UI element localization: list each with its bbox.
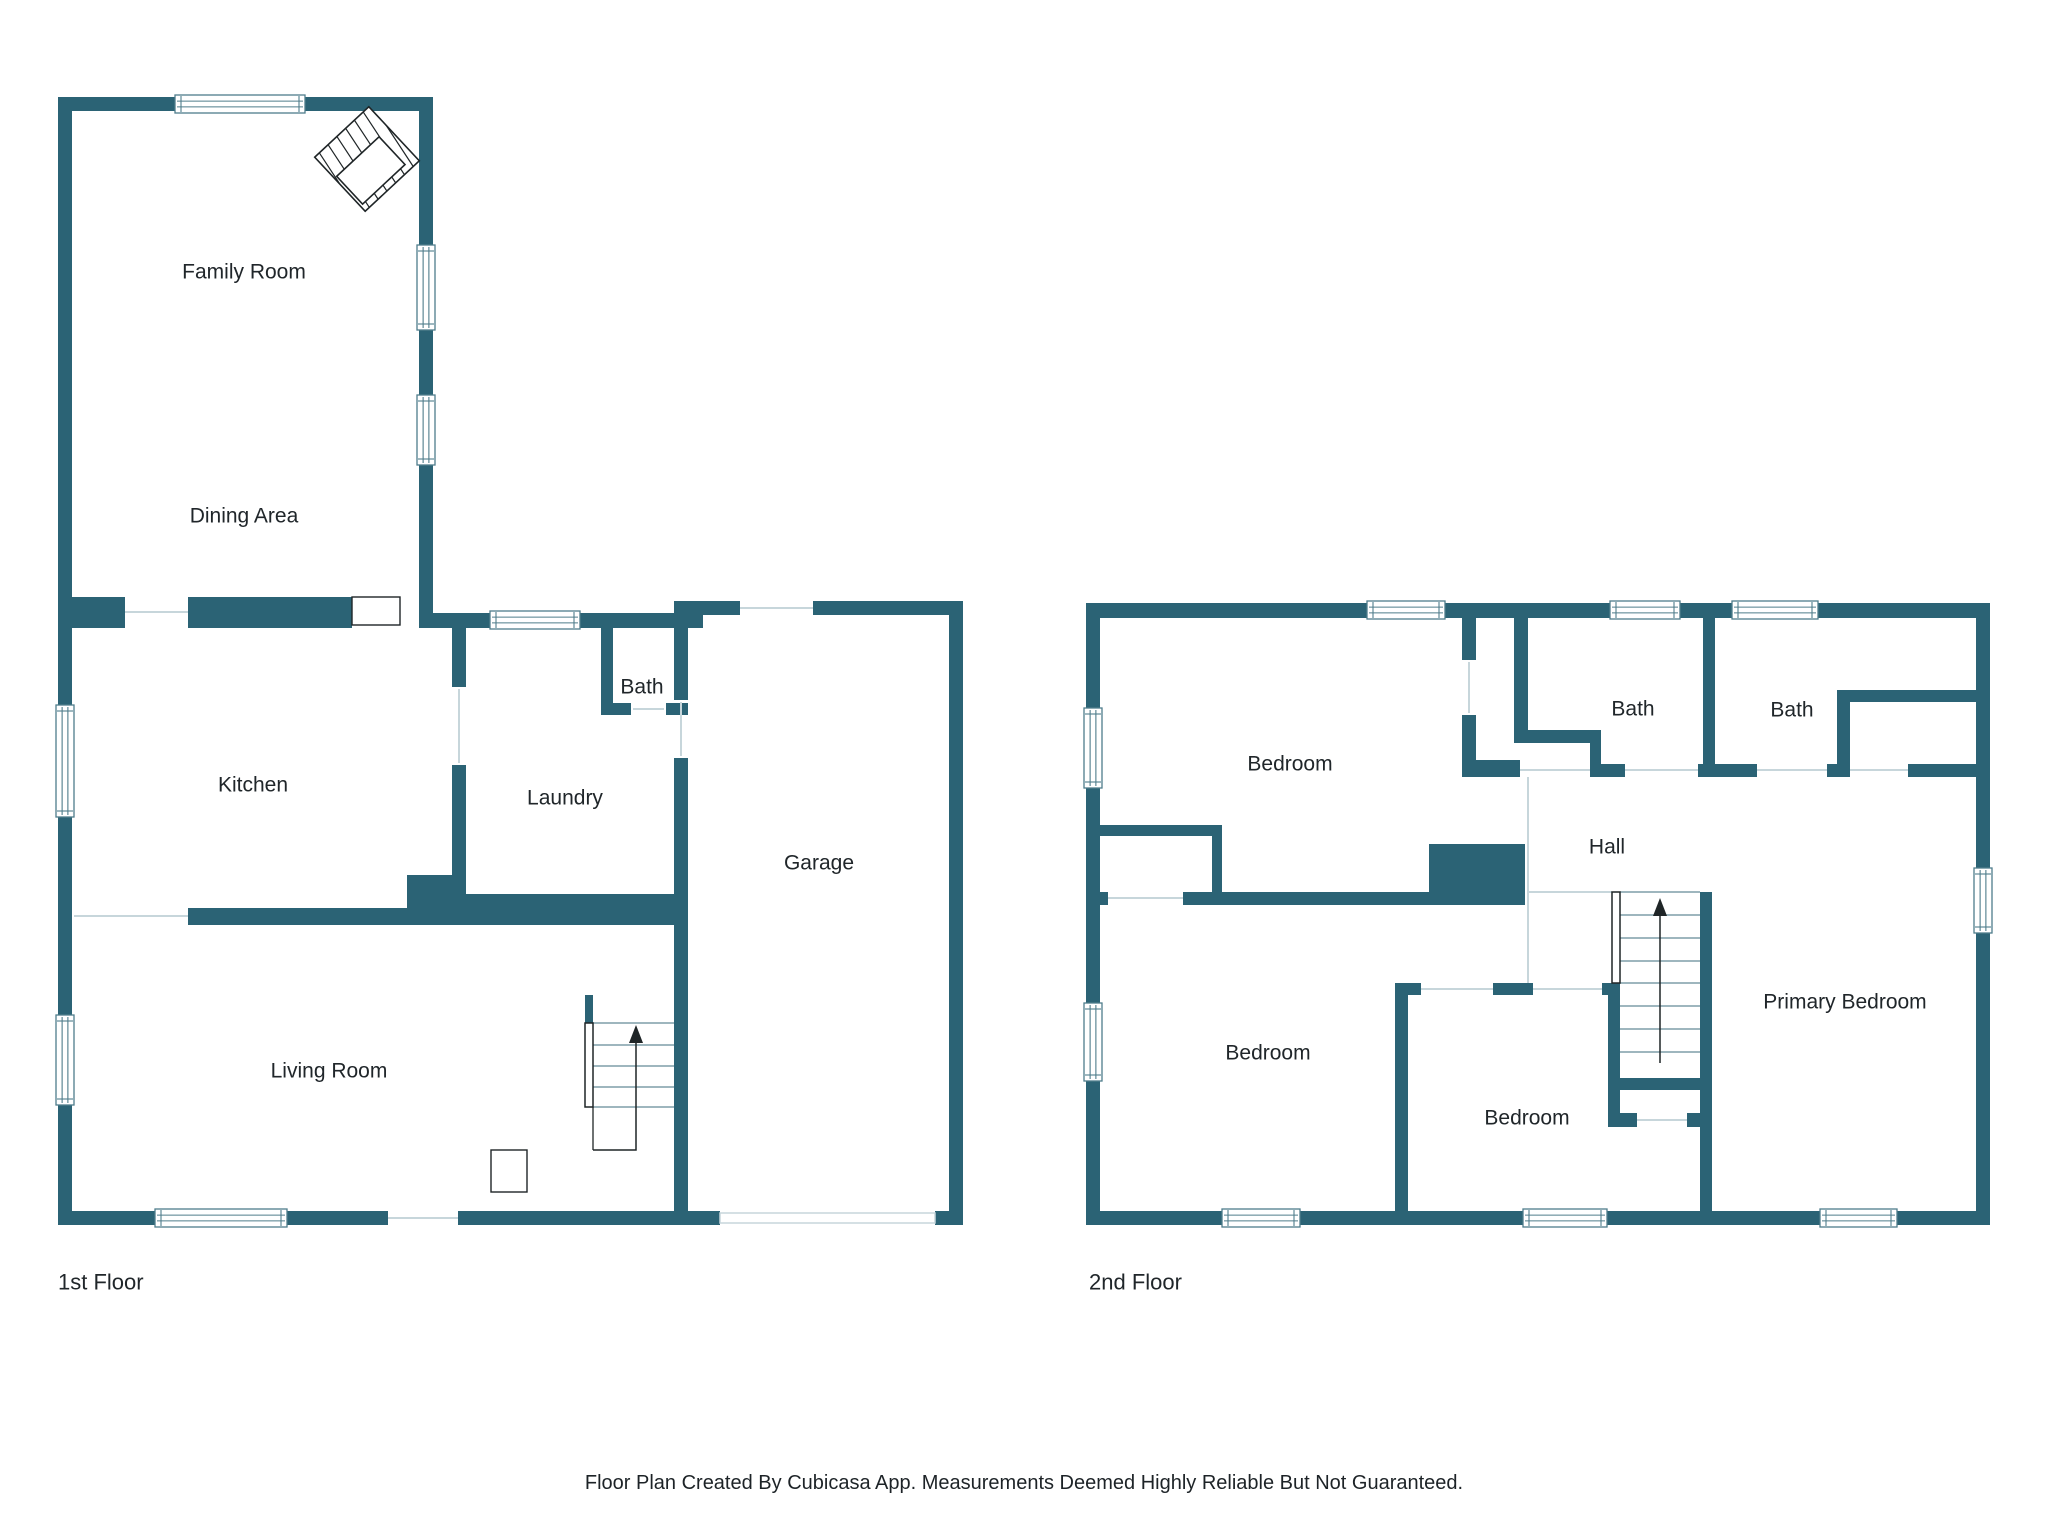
- window-icon: [1610, 601, 1680, 619]
- wall-segment: [1850, 690, 1977, 702]
- wall-segment: [674, 1211, 720, 1225]
- wall-segment: [188, 597, 352, 628]
- floor-first: Family RoomDining AreaKitchenBathLaundry…: [56, 92, 963, 1294]
- wall-segment: [1183, 892, 1429, 905]
- wall-segment: [1212, 836, 1222, 892]
- wall-segment: [1098, 892, 1108, 905]
- window-icon: [155, 1209, 287, 1227]
- wall-segment: [601, 628, 613, 715]
- room-label-living-room-6: Living Room: [271, 1060, 388, 1083]
- room-label-laundry-4: Laundry: [527, 787, 603, 810]
- floor-plan-page: Family RoomDining AreaKitchenBathLaundry…: [0, 0, 2048, 1536]
- window-icon: [175, 95, 305, 113]
- floor-second: BedroomBathBathHallBedroomBedroomPrimary…: [1084, 601, 1992, 1295]
- wall-segment: [1908, 764, 1990, 777]
- wall-segment: [666, 703, 688, 715]
- room-label-hall-3: Hall: [1589, 836, 1625, 859]
- wall-segment: [1608, 985, 1620, 1127]
- wall-segment: [1514, 730, 1601, 743]
- wall-segment: [407, 875, 466, 925]
- wall-segment: [1827, 764, 1850, 777]
- wall-segment: [1462, 715, 1476, 760]
- wall-segment: [188, 908, 407, 925]
- wall-segment: [452, 894, 688, 925]
- footer-disclaimer: Floor Plan Created By Cubicasa App. Meas…: [0, 1472, 2048, 1495]
- wall-segment: [1462, 618, 1476, 660]
- wall-segment: [452, 628, 466, 687]
- wall-segment: [452, 765, 466, 894]
- window-icon: [1084, 708, 1102, 788]
- stair-up-arrow-icon: [629, 1025, 643, 1043]
- window-icon: [56, 705, 74, 817]
- fireplace-icon: [307, 92, 435, 219]
- wall-segment: [935, 1211, 963, 1225]
- wall-segment: [1493, 983, 1533, 995]
- floor-plan-svg: Family RoomDining AreaKitchenBathLaundry…: [0, 0, 2048, 1536]
- wall-segment: [58, 1211, 155, 1225]
- wall-segment: [287, 1211, 388, 1225]
- wall-segment: [1086, 603, 1100, 1225]
- window-icon: [490, 611, 580, 629]
- window-icon: [417, 245, 435, 330]
- wall-segment: [674, 758, 688, 1225]
- room-label-kitchen-2: Kitchen: [218, 774, 288, 797]
- room-label-bath-2: Bath: [1770, 699, 1813, 722]
- wall-segment: [674, 601, 740, 615]
- stair-up-arrow-icon: [1653, 898, 1667, 916]
- wall-segment: [1837, 690, 1850, 777]
- room-label-family-room-0: Family Room: [182, 261, 306, 284]
- window-icon: [1732, 601, 1818, 619]
- wall-segment: [1098, 825, 1222, 836]
- window-icon: [56, 1015, 74, 1105]
- floor-label-first: 1st Floor: [58, 1270, 144, 1295]
- wall-segment: [1395, 983, 1421, 995]
- room-label-primary-bedroom-6: Primary Bedroom: [1763, 991, 1926, 1014]
- room-label-bedroom-5: Bedroom: [1484, 1107, 1569, 1130]
- wall-segment: [1698, 764, 1757, 777]
- window-icon: [1367, 601, 1445, 619]
- room-label-dining-area-1: Dining Area: [190, 505, 299, 528]
- room-label-bath-1: Bath: [1611, 698, 1654, 721]
- wall-segment: [1395, 995, 1408, 1211]
- wall-segment: [1612, 1113, 1637, 1127]
- stair-rail: [585, 1023, 593, 1107]
- wall-segment: [601, 703, 631, 715]
- wall-segment: [813, 601, 963, 615]
- window-icon: [417, 395, 435, 465]
- wall-segment: [1620, 1078, 1700, 1090]
- window-icon: [1084, 1003, 1102, 1081]
- room-label-bedroom-4: Bedroom: [1225, 1042, 1310, 1065]
- wall-segment: [58, 597, 125, 628]
- wall-segment: [1086, 603, 1990, 618]
- wall-segment: [1514, 618, 1528, 730]
- wall-segment: [1590, 743, 1601, 767]
- window-icon: [1974, 868, 1992, 933]
- wall-segment: [419, 97, 433, 628]
- room-label-bedroom-0: Bedroom: [1247, 753, 1332, 776]
- wall-segment: [1462, 760, 1520, 777]
- wall-segment: [1700, 892, 1712, 1211]
- stair-rail: [1612, 892, 1620, 983]
- door-leaf-icon: [352, 597, 400, 625]
- wall-segment: [949, 601, 963, 1225]
- window-icon: [1222, 1209, 1300, 1227]
- wall-segment: [458, 1211, 688, 1225]
- window-icon: [1523, 1209, 1607, 1227]
- wall-segment: [674, 613, 688, 700]
- room-label-bath-3: Bath: [620, 676, 663, 699]
- garage-door-marker: [720, 1213, 935, 1223]
- door-leaf-icon: [491, 1150, 527, 1192]
- room-label-garage-5: Garage: [784, 852, 854, 875]
- stair-direction-line: [593, 1040, 636, 1150]
- wall-segment: [585, 995, 593, 1023]
- wall-segment: [1590, 764, 1625, 777]
- wall-segment: [1429, 844, 1525, 905]
- floor-label-second: 2nd Floor: [1089, 1270, 1182, 1295]
- window-icon: [1820, 1209, 1897, 1227]
- wall-segment: [1703, 618, 1715, 764]
